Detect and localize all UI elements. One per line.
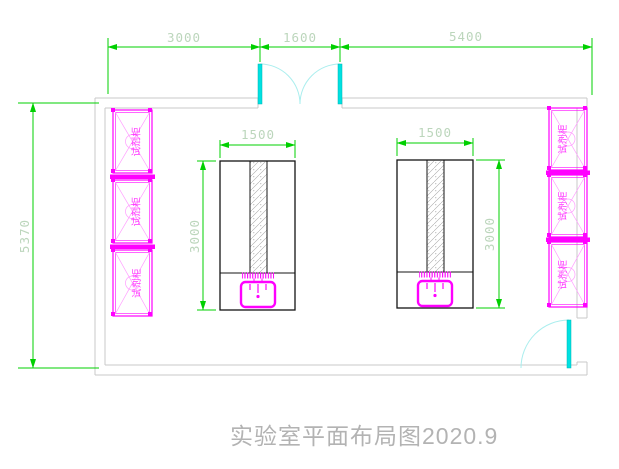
sink <box>241 273 275 308</box>
dimension-label: 3000 <box>167 30 201 45</box>
door-leaf <box>258 64 262 104</box>
reagent-cabinet: 试剂柜 <box>547 106 587 170</box>
dimension-label: 3000 <box>187 219 202 253</box>
dimension-label: 5370 <box>17 219 32 253</box>
cabinet-label: 试剂柜 <box>131 126 143 156</box>
sink-faucet <box>250 284 266 293</box>
bench-hatch-strip <box>427 160 444 272</box>
door-swing-arc <box>300 64 340 104</box>
dimension-left-wall: 5370 <box>17 103 99 368</box>
door-leaf <box>567 320 571 368</box>
dimension-label: 5400 <box>449 29 483 44</box>
cabinet-label: 试剂柜 <box>131 268 143 298</box>
dimension-label: 1500 <box>241 127 275 142</box>
room-walls <box>95 98 587 375</box>
sink-drain <box>256 295 259 298</box>
reagent-cabinet: 试剂柜 <box>547 173 587 237</box>
dimension-label: 3000 <box>482 217 497 251</box>
dimension-label: 1600 <box>283 30 317 45</box>
floorplan-canvas: 试剂柜 试剂柜 试剂柜 <box>0 0 619 469</box>
dimension-label: 1500 <box>418 125 452 140</box>
door-swing-arc <box>521 320 569 368</box>
dimension-top: 3000 1600 5400 <box>108 29 592 95</box>
floorplan-drawing: 试剂柜 试剂柜 试剂柜 <box>0 0 619 469</box>
bench-hatch-strip <box>250 161 267 273</box>
sink-grate <box>419 272 451 278</box>
extension-lines <box>397 138 473 156</box>
double-door-top <box>258 64 342 104</box>
cabinet-column-left: 试剂柜 试剂柜 试剂柜 <box>110 108 155 316</box>
reagent-cabinet: 试剂柜 <box>547 240 587 307</box>
sink-faucet <box>427 283 443 292</box>
door-right <box>521 320 571 368</box>
cabinet-label: 试剂柜 <box>557 191 569 221</box>
reagent-cabinet: 试剂柜 <box>111 108 152 173</box>
reagent-cabinet: 试剂柜 <box>111 248 152 316</box>
lab-bench-left <box>220 161 295 310</box>
dimension-bench-right-depth: 3000 <box>476 160 505 308</box>
door-leaf <box>338 64 342 104</box>
lab-bench-right <box>397 160 473 308</box>
dimension-bench-left-depth: 3000 <box>187 161 216 310</box>
cabinet-label: 试剂柜 <box>557 124 569 154</box>
reagent-cabinet: 试剂柜 <box>111 178 152 243</box>
cabinet-column-right: 试剂柜 试剂柜 试剂柜 <box>546 106 590 307</box>
dimension-bench-right-width: 1500 <box>397 125 473 156</box>
extension-lines <box>220 140 295 158</box>
sink-drain <box>433 294 436 297</box>
dimension-bench-left-width: 1500 <box>220 127 295 158</box>
sink-grate <box>242 273 274 279</box>
drawing-title: 实验室平面布局图2020.9 <box>230 423 498 449</box>
cabinet-label: 试剂柜 <box>131 196 143 226</box>
door-swing-arc <box>260 64 300 104</box>
sink <box>418 272 452 307</box>
cabinet-label: 试剂柜 <box>557 259 569 289</box>
